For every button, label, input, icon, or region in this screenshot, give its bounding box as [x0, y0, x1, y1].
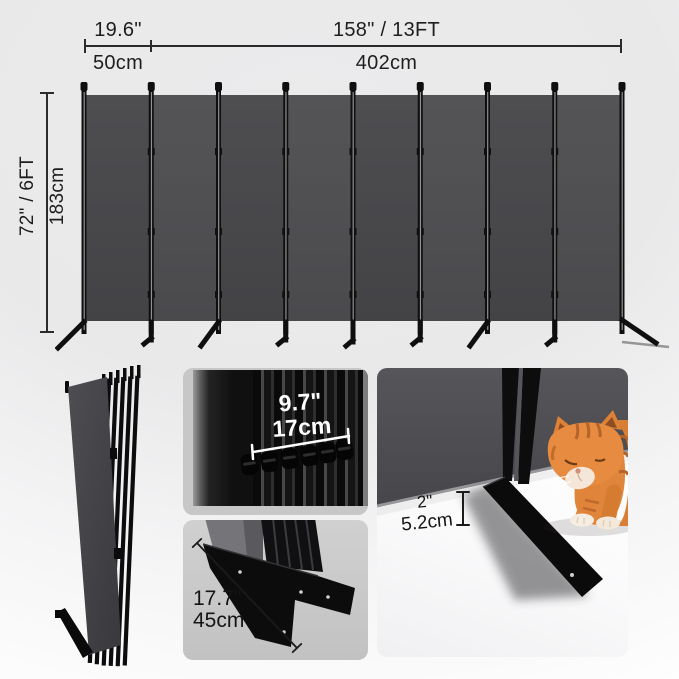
height-inches-label: 72" / 6FT — [17, 76, 39, 316]
panel-width-inches-label: 19.6" — [85, 19, 151, 42]
base-length-inches-label: 17.7" — [193, 588, 244, 610]
width-dimension-line — [85, 45, 622, 47]
folded-divider-illustration — [40, 362, 155, 677]
total-width-inches-label: 158" / 13FT — [151, 19, 622, 42]
width-dim-tick-left — [84, 39, 86, 53]
folded-depth-detail-tile: 9.7" 17cm — [183, 368, 368, 515]
product-dimension-sheet: 19.6" 158" / 13FT 50cm 402cm 72" / 6FT 1… — [0, 0, 679, 679]
total-width-cm-label: 402cm — [151, 52, 622, 75]
base-length-detail-tile: 17.7" 45cm — [183, 520, 368, 660]
divider-feet — [58, 320, 656, 348]
panel-width-cm-label: 50cm — [85, 52, 151, 75]
width-dim-tick-mid — [150, 40, 152, 52]
ground-clearance-detail-tile: 2" 5.2cm — [377, 368, 628, 657]
width-dim-tick-right — [620, 39, 622, 53]
main-divider-illustration — [55, 80, 675, 358]
height-dim-tick-bottom — [40, 331, 54, 333]
base-length-cm-label: 45cm — [193, 610, 244, 632]
